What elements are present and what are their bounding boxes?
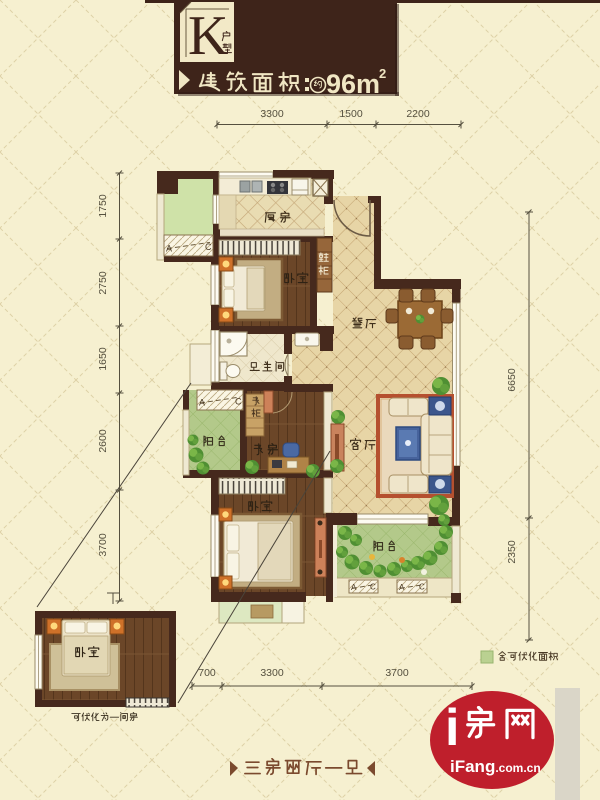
svg-text:A: A	[166, 243, 172, 253]
svg-text:1650: 1650	[97, 347, 109, 371]
svg-text:C: C	[370, 582, 376, 591]
svg-text:C: C	[205, 242, 212, 252]
svg-text:2200: 2200	[406, 108, 430, 120]
svg-text:2750: 2750	[97, 271, 109, 295]
svg-text:C: C	[419, 582, 425, 591]
svg-text:1500: 1500	[339, 108, 363, 120]
svg-text:6650: 6650	[506, 368, 518, 392]
svg-text:i: i	[445, 699, 459, 757]
svg-text:2: 2	[379, 66, 386, 81]
svg-text:96m: 96m	[326, 69, 380, 99]
svg-text:A: A	[399, 583, 405, 592]
svg-text:2350: 2350	[506, 540, 518, 564]
svg-text:3300: 3300	[260, 108, 284, 120]
svg-text:1750: 1750	[97, 194, 109, 218]
svg-text:C: C	[235, 396, 242, 406]
svg-text:3700: 3700	[97, 533, 109, 557]
svg-text:2600: 2600	[97, 429, 109, 453]
svg-text:K: K	[188, 5, 228, 67]
svg-text:A: A	[199, 398, 205, 408]
svg-text:700: 700	[198, 667, 216, 679]
svg-text:3700: 3700	[385, 667, 409, 679]
svg-text:3300: 3300	[260, 667, 284, 679]
svg-text:A: A	[351, 583, 357, 592]
